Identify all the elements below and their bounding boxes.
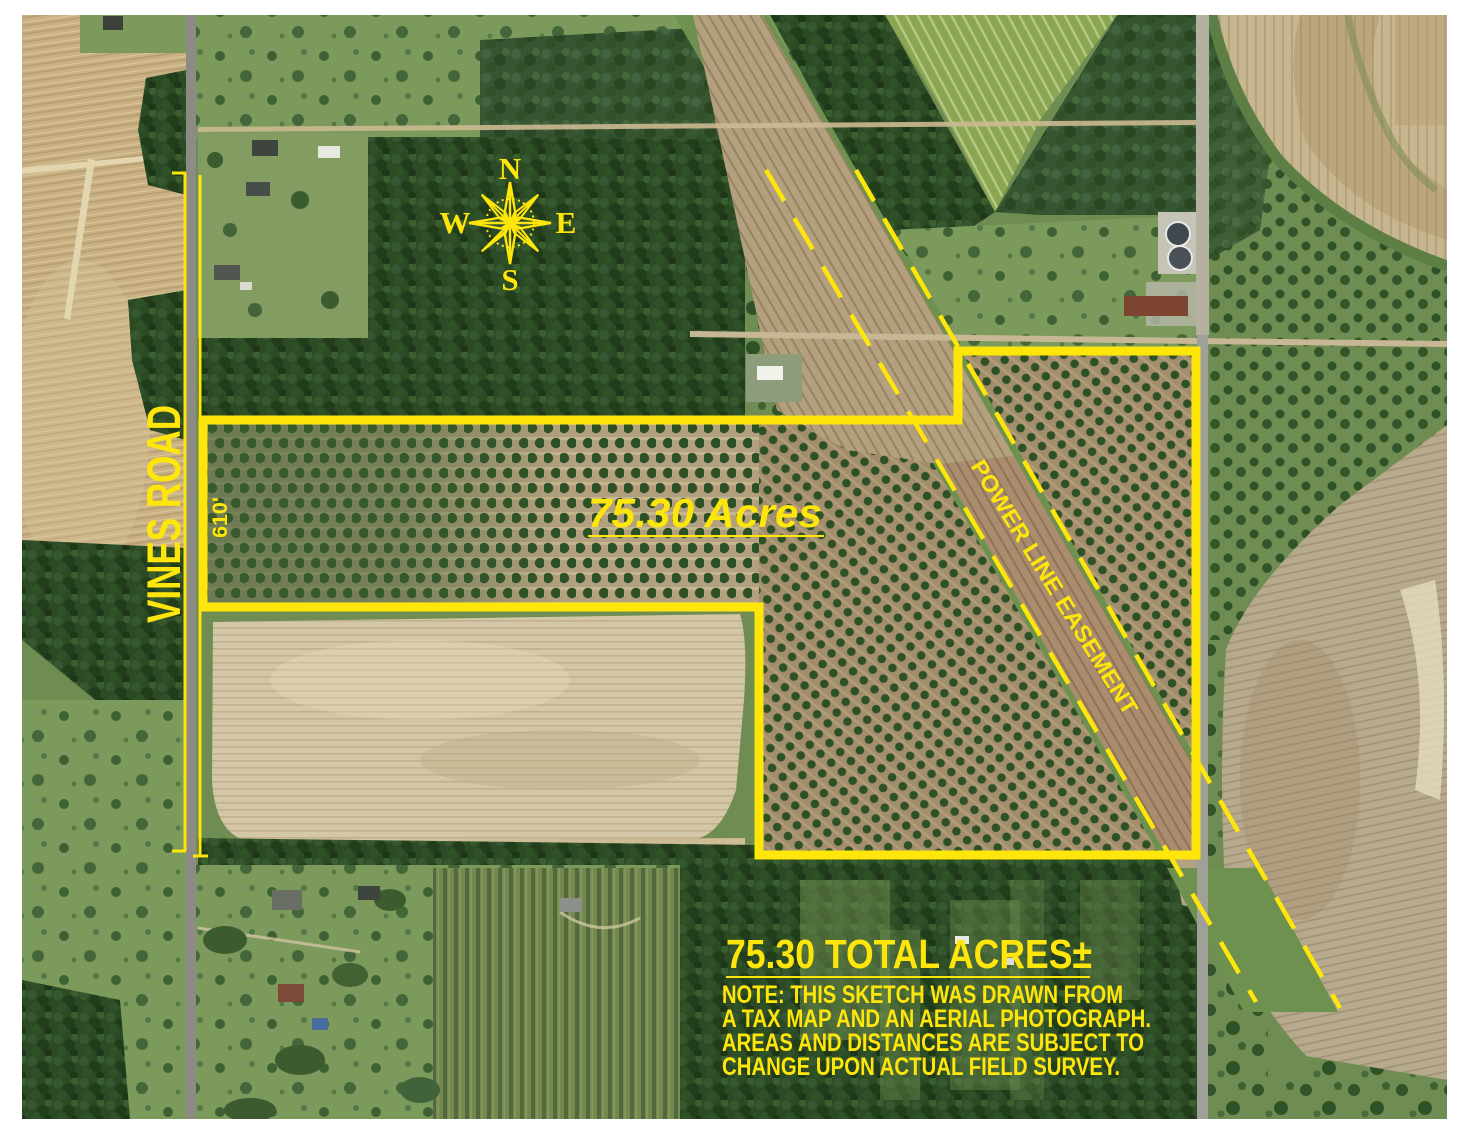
svg-text:N: N: [499, 151, 521, 186]
svg-text:E: E: [556, 205, 577, 240]
svg-text:S: S: [501, 262, 518, 297]
svg-text:W: W: [440, 205, 471, 240]
svg-text:75.30 TOTAL ACRES±: 75.30 TOTAL ACRES±: [726, 931, 1092, 977]
svg-text:610': 610': [209, 497, 232, 538]
svg-text:75.30 Acres: 75.30 Acres: [588, 490, 822, 536]
svg-text:CHANGE UPON ACTUAL FIELD SURVE: CHANGE UPON ACTUAL FIELD SURVEY.: [722, 1053, 1120, 1081]
svg-text:VINES ROAD: VINES ROAD: [137, 405, 190, 623]
